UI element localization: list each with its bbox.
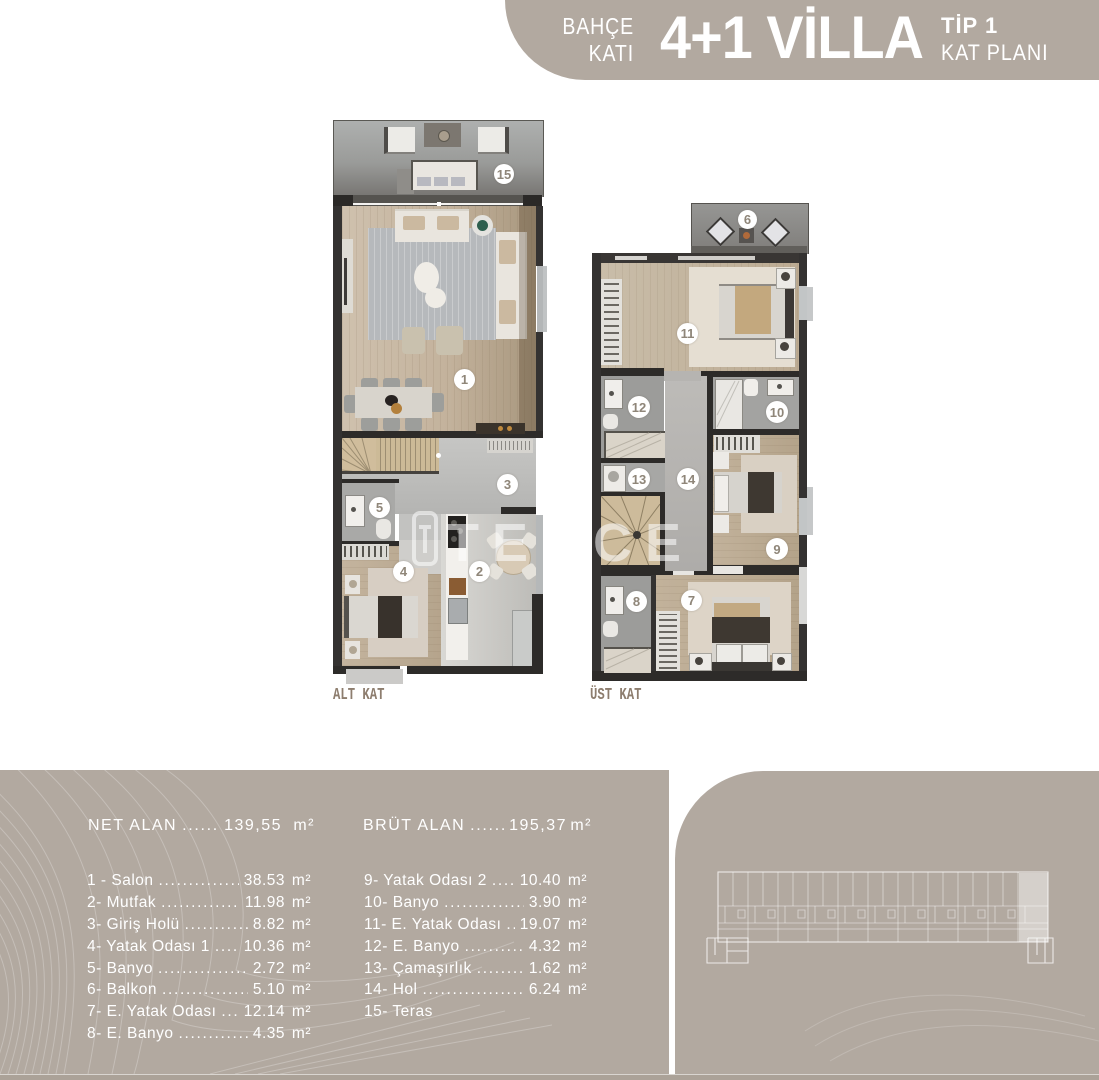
svg-text:TEKCE: TEKCE [446,513,694,570]
